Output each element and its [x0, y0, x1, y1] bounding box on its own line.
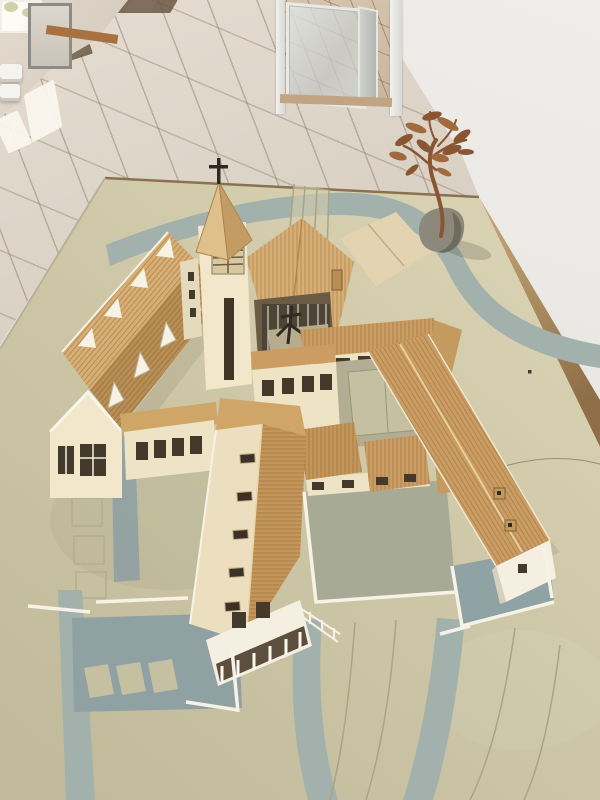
inner-garden — [304, 480, 456, 602]
tower-slot-window — [224, 298, 234, 380]
entrance-block — [120, 402, 218, 480]
chimney — [332, 270, 342, 290]
model-graphic — [0, 0, 600, 800]
board-pin-hole — [528, 370, 532, 374]
hallway-scene — [0, 0, 600, 800]
gable-windows — [58, 444, 106, 476]
cross — [209, 158, 228, 184]
